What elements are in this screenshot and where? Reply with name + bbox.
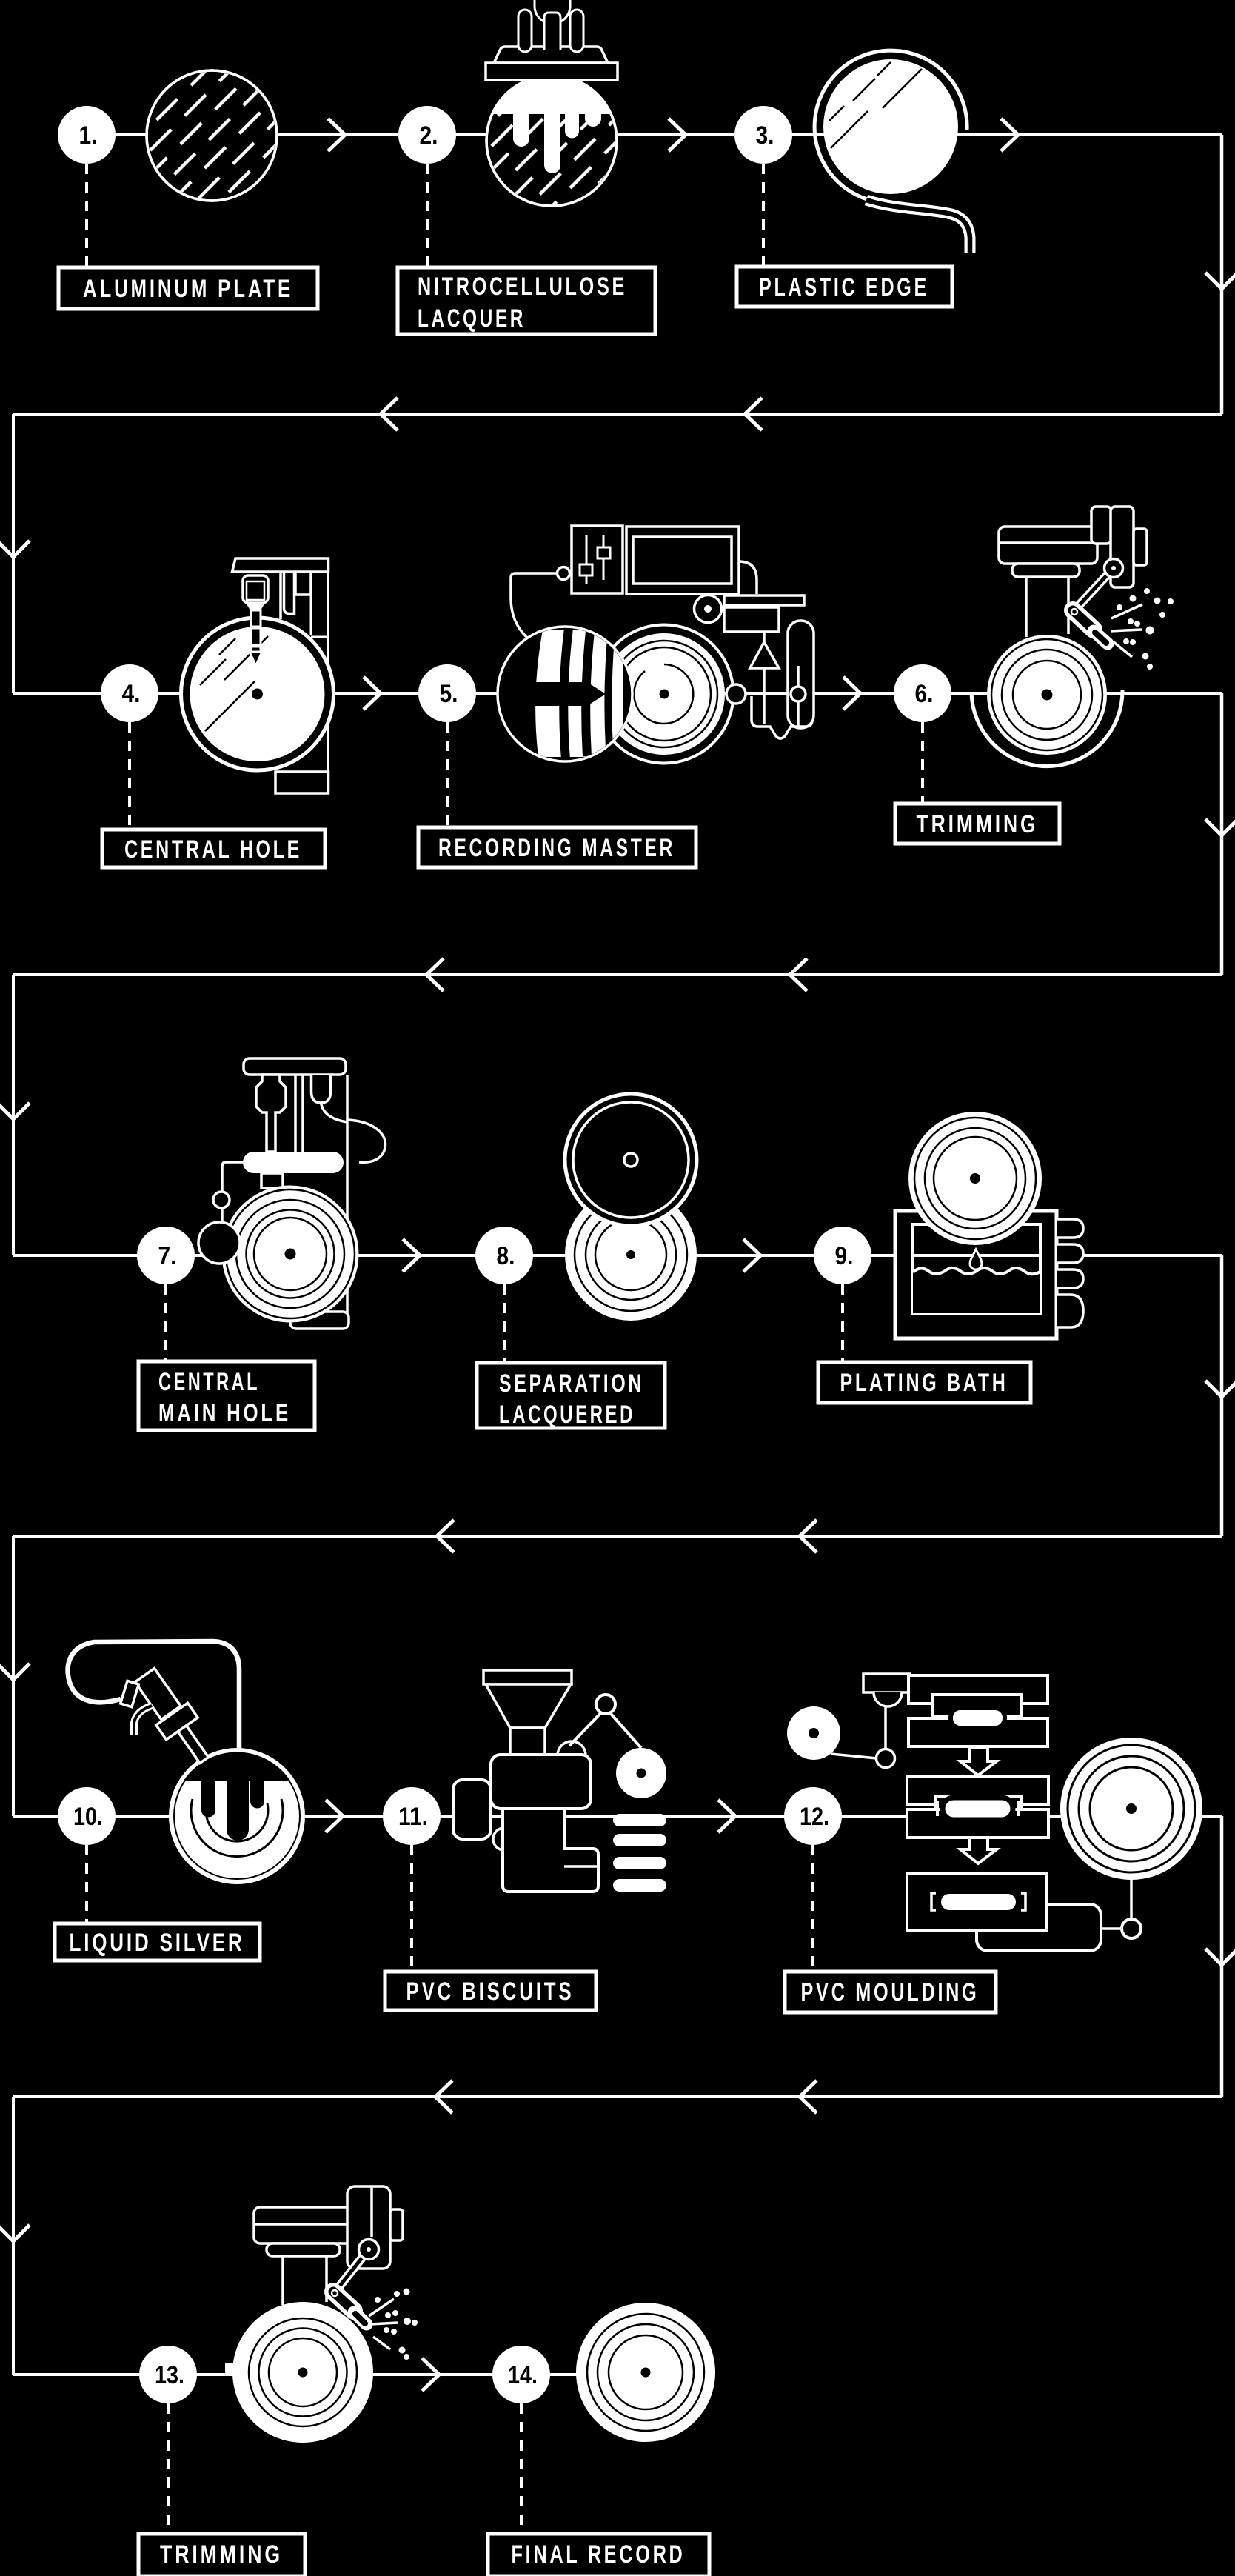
svg-text:NITROCELLULOSE: NITROCELLULOSE <box>418 273 627 301</box>
svg-text:CENTRAL: CENTRAL <box>158 1368 260 1396</box>
svg-text:3.: 3. <box>756 121 774 150</box>
svg-text:2.: 2. <box>420 121 438 150</box>
svg-text:6.: 6. <box>915 680 934 708</box>
svg-text:SEPARATION: SEPARATION <box>499 1369 644 1398</box>
svg-text:PLATING BATH: PLATING BATH <box>840 1369 1008 1397</box>
svg-text:5.: 5. <box>440 680 458 708</box>
svg-text:1.: 1. <box>79 121 98 150</box>
svg-text:4.: 4. <box>122 680 141 708</box>
svg-text:RECORDING MASTER: RECORDING MASTER <box>438 834 675 862</box>
svg-text:TRIMMING: TRIMMING <box>160 2540 283 2569</box>
svg-text:13.: 13. <box>155 2361 184 2389</box>
svg-text:8.: 8. <box>497 1242 515 1270</box>
svg-text:LIQUID SILVER: LIQUID SILVER <box>70 1929 245 1957</box>
svg-text:FINAL RECORD: FINAL RECORD <box>512 2540 686 2569</box>
svg-text:7.: 7. <box>158 1242 177 1270</box>
svg-text:PVC BISCUITS: PVC BISCUITS <box>406 1978 575 2006</box>
svg-text:9.: 9. <box>835 1242 854 1270</box>
svg-text:TRIMMING: TRIMMING <box>917 810 1039 838</box>
svg-text:11.: 11. <box>398 1803 428 1831</box>
svg-text:10.: 10. <box>73 1803 103 1831</box>
svg-text:CENTRAL HOLE: CENTRAL HOLE <box>124 835 302 864</box>
svg-text:LACQUER: LACQUER <box>418 304 526 333</box>
svg-text:ALUMINUM PLATE: ALUMINUM PLATE <box>83 275 293 303</box>
svg-text:LACQUERED: LACQUERED <box>499 1401 635 1429</box>
svg-text:PLASTIC EDGE: PLASTIC EDGE <box>759 273 929 301</box>
svg-text:PVC MOULDING: PVC MOULDING <box>801 1978 980 2006</box>
svg-text:MAIN HOLE: MAIN HOLE <box>158 1399 291 1427</box>
svg-text:14.: 14. <box>508 2361 538 2389</box>
svg-text:12.: 12. <box>800 1803 829 1831</box>
